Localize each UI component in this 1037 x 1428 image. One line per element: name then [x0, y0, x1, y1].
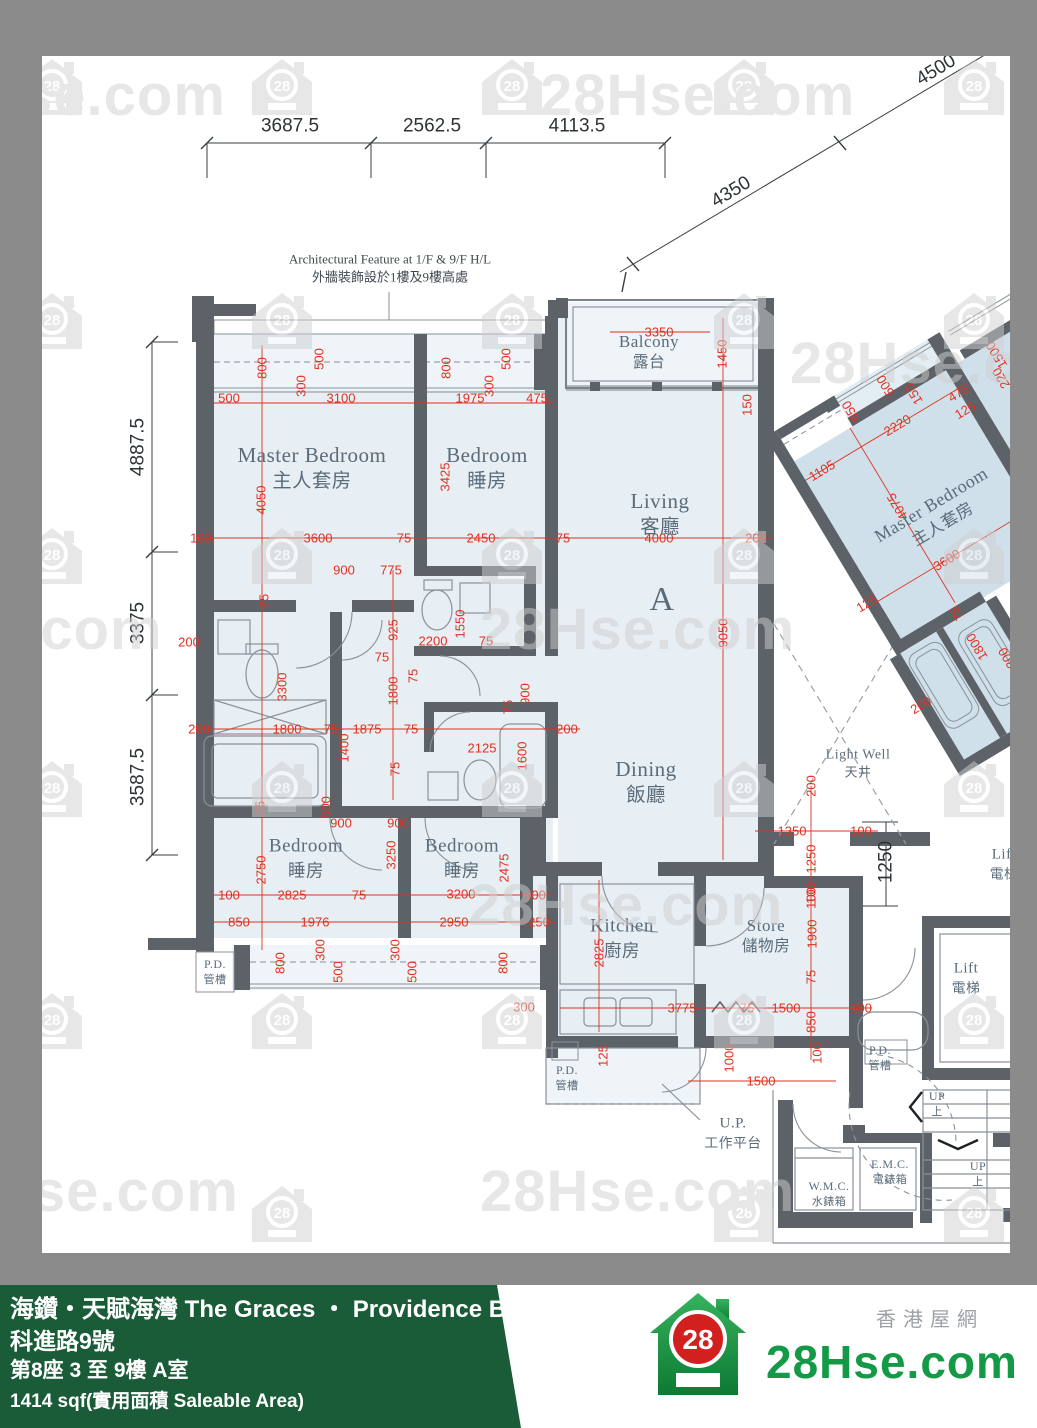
dimension-label: 1550 — [454, 610, 467, 639]
logo-house-icon: 28 — [648, 1291, 748, 1399]
room-label: E.M.C.電錶箱 — [871, 1157, 909, 1187]
room-label-zh: 睡房 — [269, 859, 343, 882]
dimension-label: 3300 — [276, 673, 289, 702]
room-label-zh: 主人套房 — [238, 469, 387, 494]
dimension-label: 75 — [805, 970, 818, 984]
dimension-label: 1976 — [301, 916, 330, 929]
dimension-label: 300 — [314, 939, 327, 961]
dimension-label: 200 — [556, 723, 578, 736]
dimension-label: 75 — [556, 532, 570, 545]
dimension-label: 475 — [526, 392, 548, 405]
room-label-zh: 管槽 — [203, 973, 226, 987]
dimension-label: 9050 — [717, 619, 730, 648]
room-label-zh: 儲物房 — [742, 937, 790, 957]
floorplan-page: 6505001502220475125150022011054075360012… — [0, 0, 1037, 1428]
dimension-label: 75 — [397, 532, 411, 545]
dimension-label: 900 — [330, 817, 352, 830]
dimension-label: 3375 — [129, 602, 148, 644]
dimension-label: 1500 — [747, 1075, 776, 1088]
dimension-label: 4500 — [913, 51, 959, 89]
room-label-zh: 上 — [929, 1105, 945, 1119]
room-label: P.D.管槽 — [555, 1063, 578, 1093]
dimension-label: 1250 — [805, 845, 818, 874]
room-label: Bedroom睡房 — [446, 442, 528, 494]
room-label: Store儲物房 — [742, 915, 790, 957]
dimension-label: 200 — [745, 532, 767, 545]
dimension-label: 100 — [524, 889, 546, 902]
room-label-zh: 管槽 — [868, 1059, 891, 1073]
room-label-zh: 露台 — [619, 353, 679, 373]
property-title: 海鑽・天賦海灣 The Graces ・ Providence Bay — [10, 1289, 533, 1324]
dimension-label: 1875 — [353, 723, 382, 736]
dimension-label: 300 — [513, 1001, 535, 1014]
logo-tagline: 香港屋網 — [876, 1303, 984, 1332]
28hse-logo[interactable]: 28 28Hse.com 香港屋網 — [648, 1291, 1028, 1423]
dimension-label: 3600 — [304, 532, 333, 545]
room-label: Living客廳 — [631, 488, 690, 540]
logo-text: 28Hse.com — [766, 1335, 1018, 1389]
dimension-label: 900 — [333, 564, 355, 577]
room-label-zh: 睡房 — [425, 859, 499, 882]
dimension-label: 1800 — [273, 723, 302, 736]
dimension-label: 2125 — [468, 742, 497, 755]
room-label: Dining飯廳 — [615, 756, 676, 808]
property-unit: 第8座 3 至 9樓 A室 — [10, 1354, 189, 1384]
room-label-zh: 管槽 — [555, 1079, 578, 1093]
dimension-label: 775 — [380, 564, 402, 577]
dimension-label: 1350 — [778, 825, 807, 838]
dimension-label: 500 — [332, 961, 345, 983]
dimension-label: 850 — [805, 1011, 818, 1033]
dimension-label: 300 — [483, 375, 496, 397]
dimension-label: 75 — [502, 700, 515, 714]
dimension-label: 500 — [218, 392, 240, 405]
room-label: UP上 — [970, 1159, 986, 1189]
dimension-label: 100 — [850, 825, 872, 838]
dimension-label: 1450 — [716, 340, 729, 369]
room-label-zh: 電錶箱 — [871, 1173, 909, 1187]
dimension-label: 75 — [375, 651, 389, 664]
room-label: Balcony露台 — [619, 331, 679, 373]
room-label-zh: 天井 — [826, 765, 891, 782]
dimension-label: 1800 — [387, 677, 400, 706]
svg-text:28: 28 — [682, 1324, 713, 1355]
dimension-label: 2450 — [467, 532, 496, 545]
room-label-zh: 睡房 — [446, 469, 528, 494]
dimension-label: 800 — [440, 357, 453, 379]
frame-left — [0, 0, 42, 1285]
dimension-label: 4350 — [708, 173, 754, 211]
dimension-label: 800 — [497, 952, 510, 974]
plan-annotations: 5003100197547580030050080030050010036007… — [0, 0, 1037, 1428]
room-label: Lift電梯 — [952, 959, 981, 996]
dimension-label: 75 — [389, 762, 402, 776]
room-label: P.D.管槽 — [868, 1043, 891, 1073]
dimension-label: 800 — [274, 952, 287, 974]
room-label: Bedroom睡房 — [425, 834, 499, 881]
dimension-label: 250 — [528, 916, 550, 929]
dimension-label: 2562.5 — [403, 117, 461, 136]
dimension-label: 1400 — [338, 734, 351, 763]
dimension-label: 800 — [256, 357, 269, 379]
dimension-label: 100 — [218, 889, 240, 902]
dimension-label: 75 — [352, 889, 366, 902]
room-label: Bedroom睡房 — [269, 834, 343, 881]
room-label: Kitchen廚房 — [590, 914, 654, 961]
dimension-label: 2475 — [498, 854, 511, 883]
dimension-label: 2200 — [419, 635, 448, 648]
dimension-label: 300 — [295, 375, 308, 397]
dimension-label: 200 — [188, 723, 210, 736]
room-label: Master Bedroom主人套房 — [238, 442, 387, 494]
dimension-label: 100 — [850, 1002, 872, 1015]
dimension-label: 150 — [741, 394, 754, 416]
dimension-label: 850 — [228, 916, 250, 929]
dimension-label: 100 — [190, 532, 212, 545]
dimension-label: 75 — [404, 723, 418, 736]
dimension-label: 500 — [406, 961, 419, 983]
dimension-label: 1900 — [806, 920, 819, 949]
room-label: P.D.管槽 — [203, 957, 226, 987]
dimension-label: 3100 — [327, 392, 356, 405]
room-label-zh: 水錶箱 — [809, 1195, 850, 1209]
room-label: W.M.C.水錶箱 — [809, 1179, 850, 1209]
dimension-label: 125 — [597, 1045, 610, 1067]
dimension-label: 75 — [407, 669, 420, 683]
room-label: Light Well天井 — [826, 747, 891, 782]
dimension-label: 75 — [479, 635, 493, 648]
dimension-label: 3775 — [668, 1002, 697, 1015]
room-label-zh: 工作平台 — [704, 1134, 761, 1152]
dimension-label: 1500 — [772, 1002, 801, 1015]
dimension-label: 100 — [805, 887, 818, 909]
dimension-label: 4887.5 — [129, 418, 148, 476]
dimension-label: 200 — [805, 775, 818, 797]
room-label: A — [649, 578, 674, 622]
room-label-zh: 廚房 — [590, 939, 654, 962]
dimension-label: 1600 — [516, 742, 529, 771]
dimension-label: 75 — [740, 1002, 754, 1015]
dimension-label: 1975 — [456, 392, 485, 405]
property-address: 科進路9號 — [10, 1322, 115, 1356]
dimension-label: 500 — [500, 348, 513, 370]
architectural-feature-note: Architectural Feature at 1/F & 9/F H/L外牆… — [289, 250, 491, 285]
room-label-zh: 客廳 — [631, 515, 690, 540]
dimension-label: 200 — [178, 636, 200, 649]
dimension-label: 2750 — [255, 856, 268, 885]
room-label-zh: 飯廳 — [615, 783, 676, 808]
dimension-label: 1250 — [877, 841, 896, 883]
dimension-label: 100 — [811, 1042, 824, 1064]
room-label: U.P.工作平台 — [704, 1114, 761, 1151]
dimension-label: 925 — [387, 619, 400, 641]
room-label: UP上 — [929, 1089, 945, 1119]
dimension-label: 75 — [258, 594, 271, 608]
dimension-label: 2825 — [278, 889, 307, 902]
frame-right — [1010, 0, 1037, 1285]
dimension-label: 3687.5 — [261, 117, 319, 136]
dimension-label: 3587.5 — [129, 748, 148, 806]
frame-top — [0, 0, 1037, 56]
dimension-label: 3250 — [385, 841, 398, 870]
dimension-label: 3200 — [447, 888, 476, 901]
dimension-label: 2950 — [440, 916, 469, 929]
frame-bottom — [0, 1253, 1037, 1285]
dimension-label: 900 — [387, 817, 409, 830]
dimension-label: 500 — [313, 348, 326, 370]
dimension-label: 300 — [389, 939, 402, 961]
dimension-label: 900 — [519, 683, 532, 705]
dimension-label: 1000 — [723, 1044, 736, 1073]
room-label-zh: 電梯 — [952, 979, 981, 997]
dimension-label: 75 — [254, 801, 267, 815]
dimension-label: 4113.5 — [549, 117, 606, 136]
property-area: 1414 sqf(實用面積 Saleable Area) — [10, 1386, 304, 1413]
footer: 海鑽・天賦海灣 The Graces ・ Providence Bay 科進路9… — [0, 1285, 1037, 1428]
room-label-zh: 上 — [970, 1175, 986, 1189]
